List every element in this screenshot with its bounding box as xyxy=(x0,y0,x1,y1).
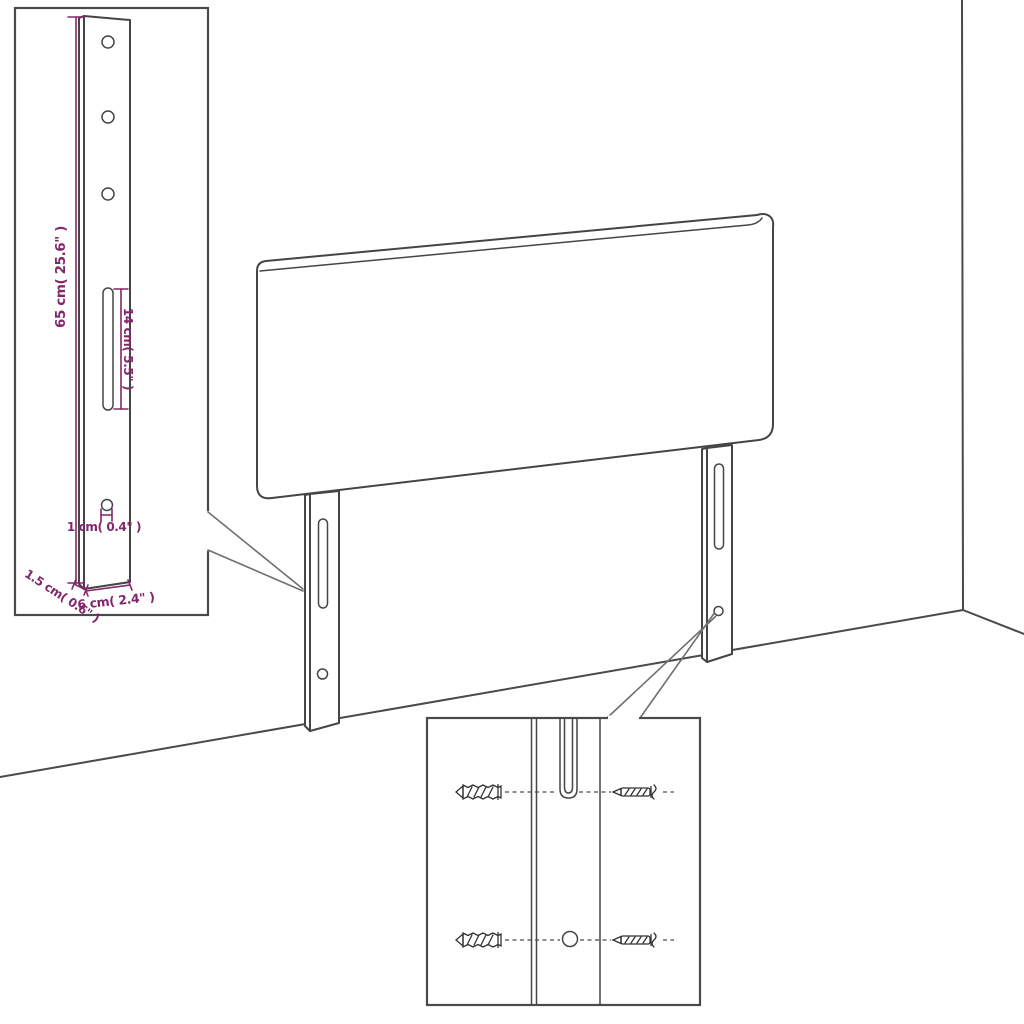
headboard-panel xyxy=(257,214,773,498)
headboard-outline xyxy=(257,214,773,498)
dim-label-height: 65 cm( 25.6" ) xyxy=(53,226,69,328)
bracket-bottom-hole xyxy=(102,500,113,511)
assembly-diagram: 65 cm( 25.6" ) 14 cm( 5.5" ) 1 cm( 0.4" … xyxy=(0,0,1024,1024)
left-leg-slot xyxy=(319,519,328,608)
right-leg-slot xyxy=(715,464,724,549)
floor-line-right xyxy=(963,610,1024,634)
bracket-hole-2 xyxy=(102,111,114,123)
bracket-hole-1 xyxy=(102,36,114,48)
wall-corner-line xyxy=(962,0,963,610)
dim-label-slot: 14 cm( 5.5" ) xyxy=(121,308,135,390)
callout-line xyxy=(640,614,714,719)
callout-right xyxy=(607,614,716,719)
callout-line xyxy=(607,617,716,719)
mounting-detail-inset xyxy=(427,718,700,1005)
bracket-drawing xyxy=(79,16,130,589)
callout-line xyxy=(208,512,303,589)
headboard-left-leg xyxy=(305,491,339,731)
left-leg-hole xyxy=(318,669,328,679)
callout-left xyxy=(208,512,303,591)
bracket-hole-3 xyxy=(102,188,114,200)
dim-label-hole: 1 cm( 0.4" ) xyxy=(67,520,141,534)
leg-closeup-hole xyxy=(563,932,578,947)
bracket-detail-inset: 65 cm( 25.6" ) 14 cm( 5.5" ) 1 cm( 0.4" … xyxy=(15,8,208,625)
right-leg-hole xyxy=(714,607,723,616)
bracket-slot xyxy=(103,288,113,410)
callout-line xyxy=(208,550,303,591)
mounting-inset-box xyxy=(427,718,700,1005)
headboard-right-leg xyxy=(702,445,732,662)
